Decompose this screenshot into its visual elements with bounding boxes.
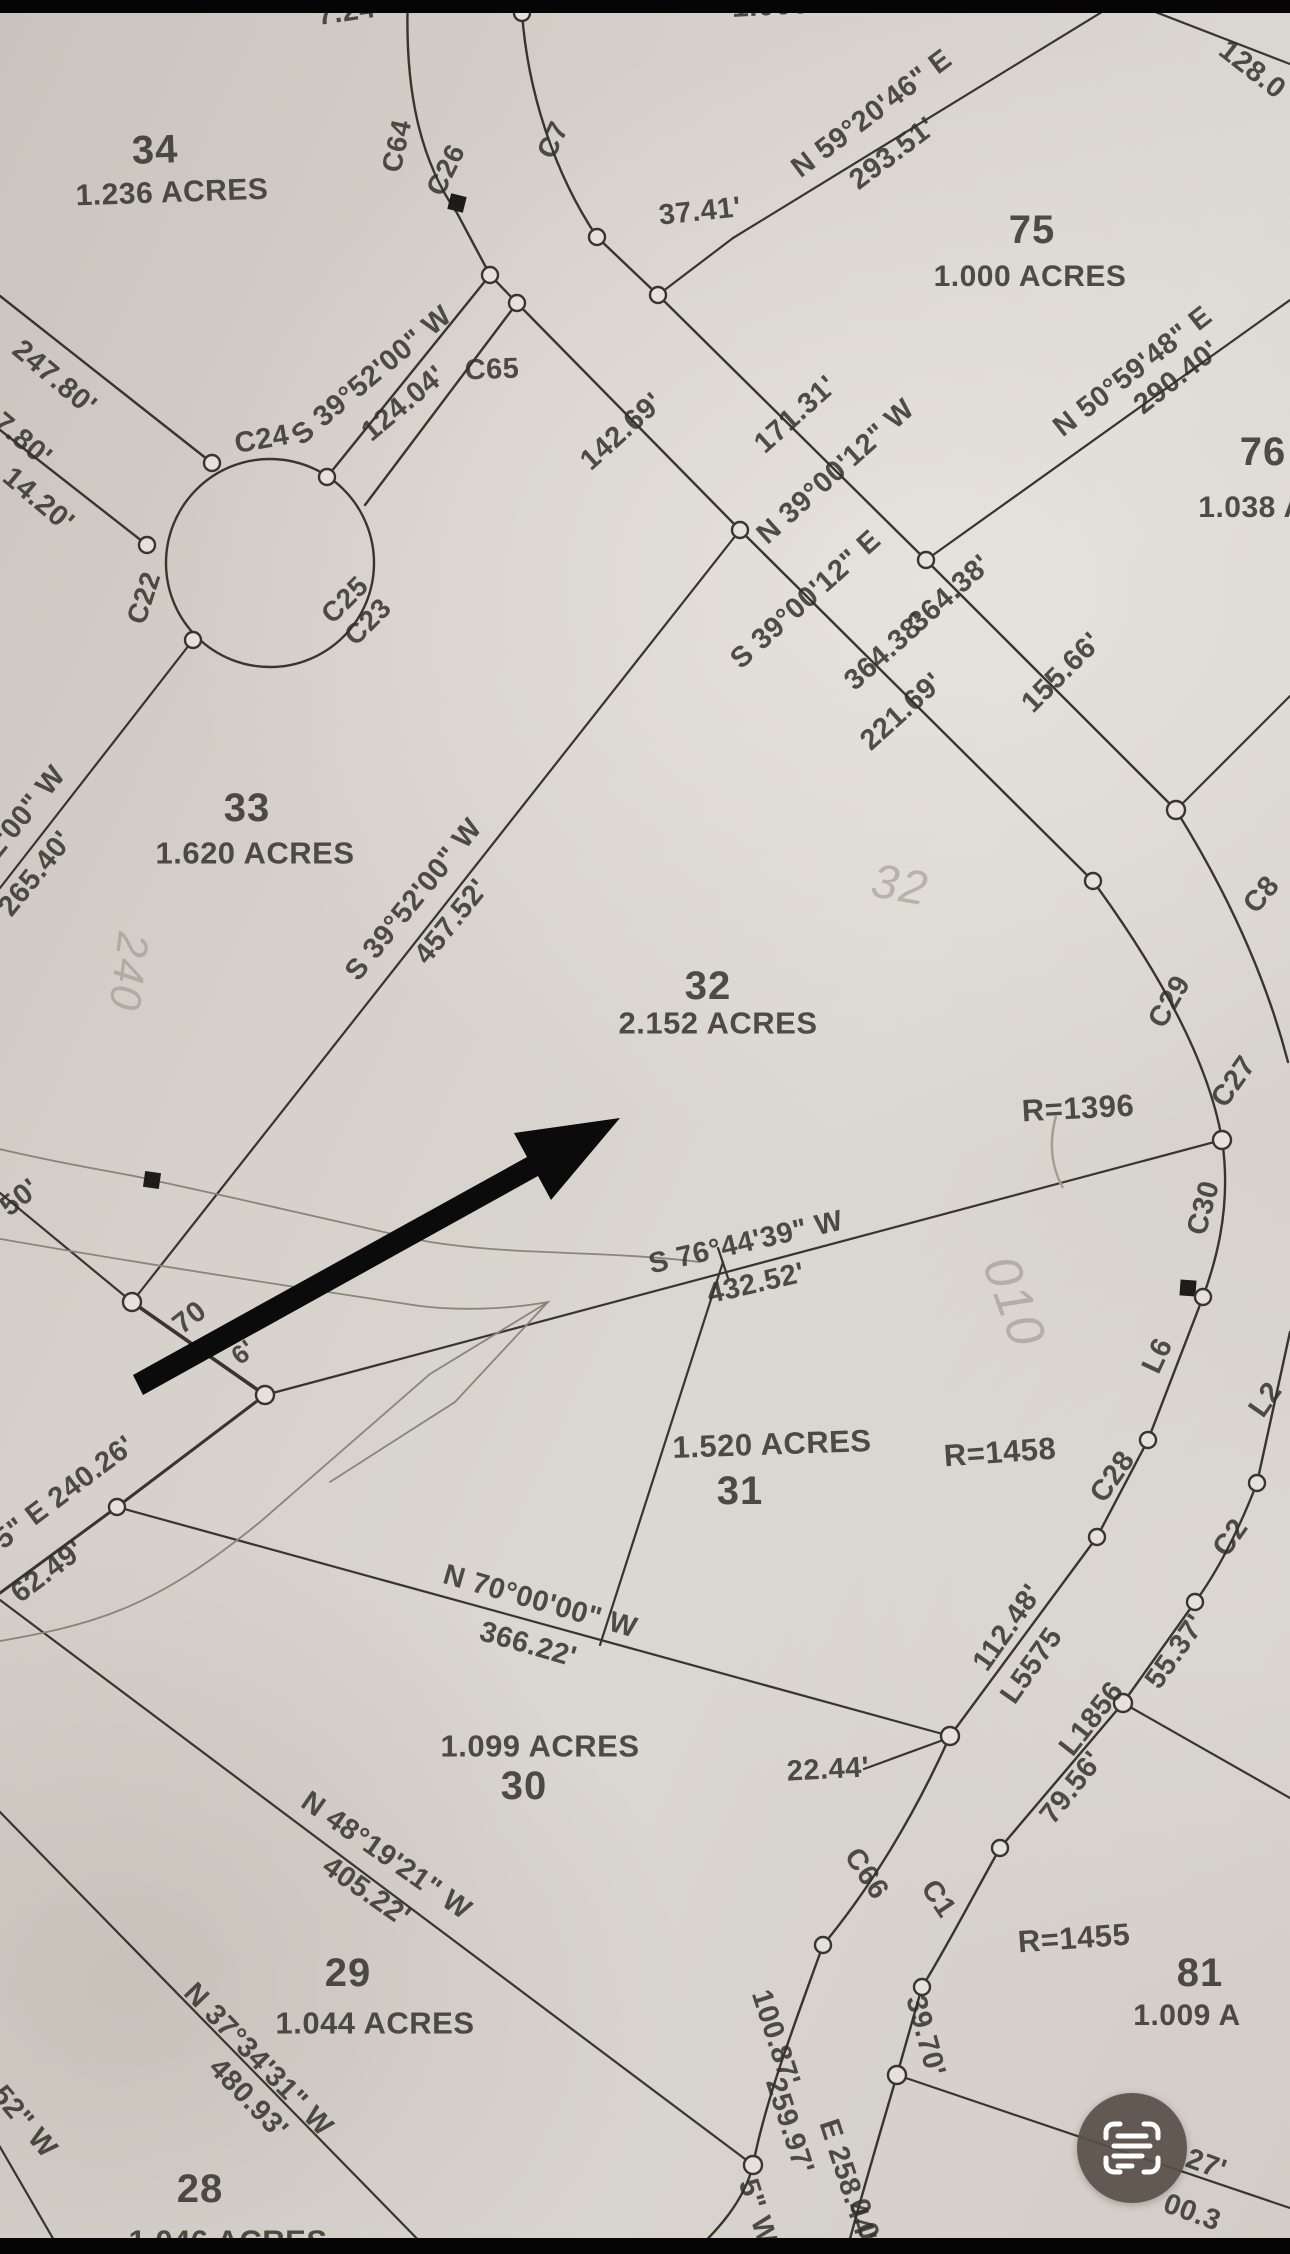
map-label-radius: R=1458 bbox=[943, 1433, 1057, 1472]
map-label-curve: C29 bbox=[1144, 971, 1196, 1033]
map-label-dim: 70 bbox=[168, 1296, 212, 1339]
map-label-curve: L6 bbox=[1137, 1334, 1178, 1378]
map-label-dim: 39.70' bbox=[900, 1992, 949, 2079]
map-label-dim: 155.66' bbox=[1017, 628, 1108, 719]
map-label-dim: 50' bbox=[0, 1174, 45, 1222]
map-label-curve: C66 bbox=[839, 1843, 894, 1905]
handwritten-note: 010 bbox=[974, 1250, 1055, 1355]
map-label-lot: 29 bbox=[325, 1953, 372, 1993]
map-label-dim: 6' bbox=[226, 1335, 259, 1369]
map-label-area: 1.038 A bbox=[1198, 493, 1290, 523]
map-label-curve: L2 bbox=[1244, 1377, 1288, 1422]
map-label-lot: 75 bbox=[1009, 210, 1056, 250]
map-label-curve: C27 bbox=[1206, 1051, 1261, 1112]
map-label-dim: 37.41' bbox=[657, 193, 742, 230]
map-label-dim: 259.97' bbox=[760, 2074, 818, 2177]
map-label-curve: C30 bbox=[1183, 1178, 1225, 1238]
map-label-curve: C65 bbox=[464, 355, 520, 386]
map-label-lot: 32 bbox=[685, 966, 732, 1006]
map-label-curve: C24 bbox=[233, 421, 292, 459]
map-label-radius: R=1455 bbox=[1017, 1919, 1131, 1958]
map-label-dim: 22.44' bbox=[786, 1753, 870, 1786]
map-label-lot: 28 bbox=[177, 2169, 224, 2209]
map-label-area: 1.620 ACRES bbox=[155, 838, 354, 869]
photo-viewer-screen: 7.24'1.000 ACRES341.236 ACRESC64C26C737.… bbox=[0, 0, 1290, 2254]
map-label-area: 1.044 ACRES bbox=[275, 2008, 474, 2039]
map-label-area: 2.152 ACRES bbox=[618, 1008, 817, 1039]
letterbox-bottom bbox=[0, 2238, 1290, 2254]
map-label-dim: 100.87' bbox=[746, 1986, 804, 2089]
handwritten-note: 32 bbox=[868, 857, 933, 914]
map-label-lot: 34 bbox=[131, 129, 179, 171]
map-label-curve: C64 bbox=[378, 117, 416, 175]
map-label-dim: 7.80' bbox=[0, 408, 57, 473]
map-label-curve: C1 bbox=[915, 1875, 960, 1923]
map-label-lot: 81 bbox=[1177, 1953, 1224, 1993]
map-label-dim: 142.69' bbox=[575, 388, 668, 476]
map-label-curve: C2 bbox=[1208, 1514, 1254, 1562]
map-label-dim: 432.52' bbox=[704, 1259, 807, 1310]
map-label-area: 1.099 ACRES bbox=[440, 1731, 639, 1762]
map-label-dim: 247.80' bbox=[7, 335, 102, 421]
map-label-curve: C26 bbox=[422, 140, 470, 200]
map-label-area: 1.009 A bbox=[1133, 2001, 1240, 2031]
map-label-curve: C22 bbox=[123, 569, 166, 628]
scan-text-icon bbox=[1101, 2117, 1163, 2179]
letterbox-top bbox=[0, 0, 1290, 13]
map-label-dim: 366.22' bbox=[476, 1617, 579, 1672]
map-label-area: 1.000 ACRES bbox=[934, 262, 1127, 292]
map-label-lot: 30 bbox=[501, 1766, 548, 1806]
handwritten-note: 240 bbox=[101, 930, 154, 1014]
map-label-bearing: 52" W bbox=[0, 2081, 62, 2164]
map-label-lot: 31 bbox=[717, 1471, 764, 1511]
map-label-lot: 33 bbox=[224, 788, 271, 828]
map-label-dim: 00.3 bbox=[1160, 2189, 1225, 2236]
map-labels-layer: 7.24'1.000 ACRES341.236 ACRESC64C26C737.… bbox=[0, 0, 1290, 2254]
map-label-curve: C28 bbox=[1085, 1446, 1140, 1507]
map-label-dim: 27' bbox=[1182, 2144, 1230, 2185]
map-label-lot: 76 bbox=[1240, 432, 1287, 472]
map-label-dim: 14.20' bbox=[0, 462, 79, 537]
map-label-curve: C7 bbox=[533, 117, 574, 162]
map-label-curve: C8 bbox=[1239, 871, 1286, 919]
map-label-radius: R=1396 bbox=[1021, 1090, 1135, 1127]
map-label-curve: L1856 bbox=[1054, 1677, 1129, 1762]
map-label-area: 1.520 ACRES bbox=[672, 1425, 872, 1463]
map-label-dim: 55.37' bbox=[1140, 1610, 1211, 1694]
map-label-area: 1.236 ACRES bbox=[75, 175, 269, 212]
scan-text-button[interactable] bbox=[1077, 2093, 1187, 2203]
map-label-dim: 171.31' bbox=[749, 371, 842, 459]
map-label-dim: 128.0 bbox=[1213, 35, 1290, 104]
map-label-dim: 79.56' bbox=[1035, 1747, 1109, 1830]
